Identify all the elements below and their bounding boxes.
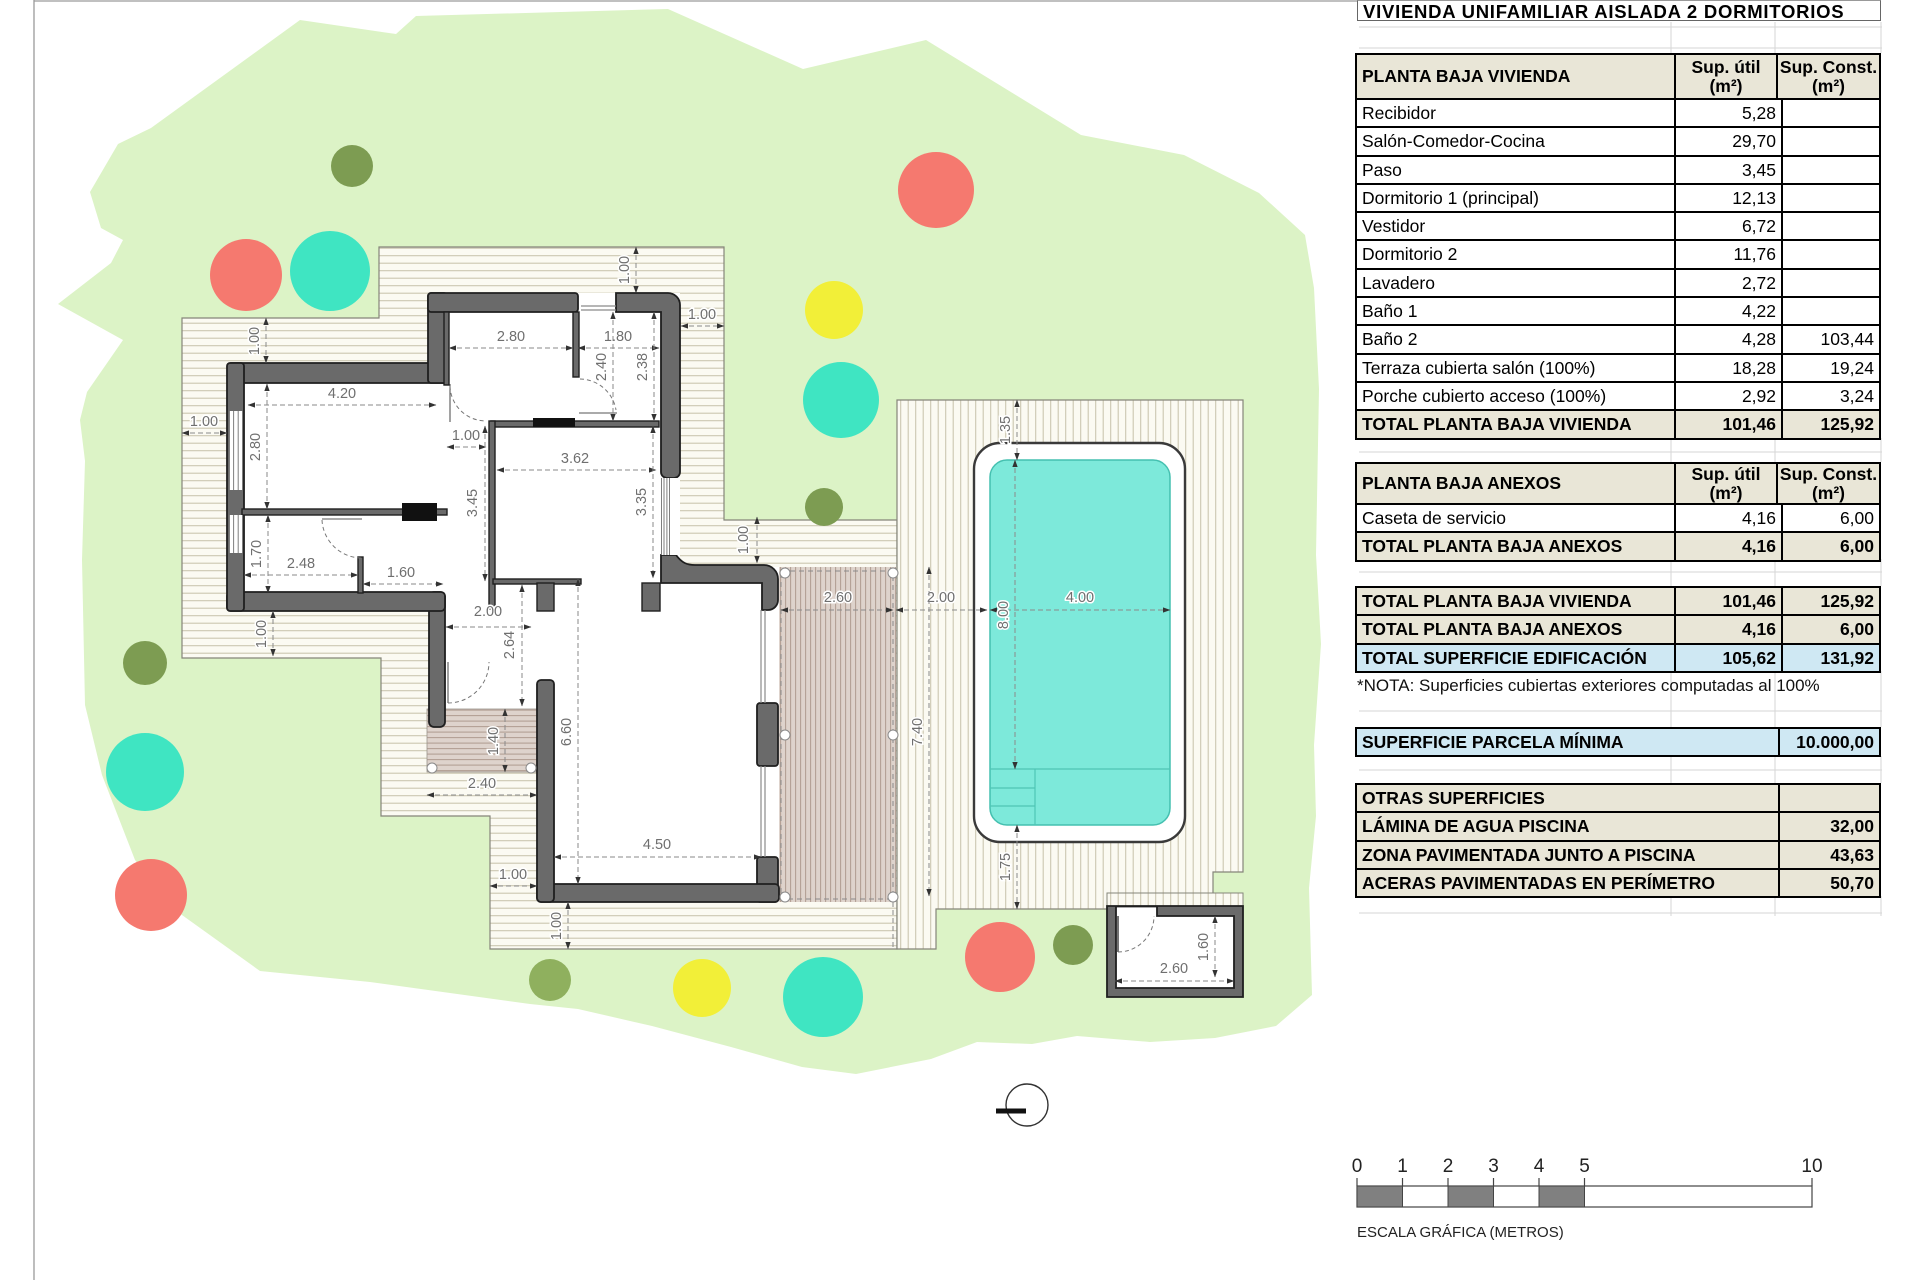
svg-text:6.60: 6.60 <box>559 718 575 746</box>
svg-text:4.00: 4.00 <box>1066 590 1094 606</box>
svg-text:1.00: 1.00 <box>617 256 633 284</box>
svg-text:2.00: 2.00 <box>474 604 502 620</box>
svg-text:ESCALA GRÁFICA (METROS): ESCALA GRÁFICA (METROS) <box>1357 1224 1564 1241</box>
svg-text:2.60: 2.60 <box>1160 961 1188 977</box>
svg-text:2.00: 2.00 <box>927 590 955 606</box>
svg-text:1.00: 1.00 <box>499 867 527 883</box>
svg-text:1.35: 1.35 <box>998 416 1014 444</box>
svg-text:3.35: 3.35 <box>634 488 650 516</box>
svg-text:1.60: 1.60 <box>387 565 415 581</box>
svg-text:2.60: 2.60 <box>824 590 852 606</box>
svg-text:1.60: 1.60 <box>1196 933 1212 961</box>
svg-text:1.00: 1.00 <box>254 620 270 648</box>
svg-text:1.00: 1.00 <box>452 428 480 444</box>
svg-text:4.50: 4.50 <box>643 837 671 853</box>
svg-text:2.40: 2.40 <box>594 353 610 381</box>
svg-text:1.70: 1.70 <box>249 540 265 568</box>
svg-text:2.38: 2.38 <box>635 353 651 381</box>
svg-text:0: 0 <box>1352 1156 1363 1177</box>
svg-text:1.75: 1.75 <box>998 853 1014 881</box>
svg-text:1.00: 1.00 <box>549 912 565 940</box>
svg-text:2.48: 2.48 <box>287 556 315 572</box>
svg-text:3.62: 3.62 <box>561 451 589 467</box>
svg-text:1: 1 <box>1397 1156 1408 1177</box>
svg-text:1.00: 1.00 <box>688 307 716 323</box>
svg-text:1.00: 1.00 <box>736 526 752 554</box>
svg-text:2.80: 2.80 <box>248 433 264 461</box>
svg-text:8.00: 8.00 <box>996 601 1012 629</box>
svg-text:7.40: 7.40 <box>910 718 926 746</box>
svg-text:5: 5 <box>1579 1156 1590 1177</box>
svg-text:10: 10 <box>1801 1156 1822 1177</box>
svg-text:4: 4 <box>1534 1156 1545 1177</box>
svg-text:2: 2 <box>1443 1156 1454 1177</box>
svg-text:2.64: 2.64 <box>502 631 518 659</box>
svg-text:3.45: 3.45 <box>465 489 481 517</box>
svg-text:2.80: 2.80 <box>497 329 525 345</box>
svg-text:1.00: 1.00 <box>190 414 218 430</box>
svg-text:4.20: 4.20 <box>328 386 356 402</box>
svg-text:1.80: 1.80 <box>604 329 632 345</box>
svg-text:1.40: 1.40 <box>486 727 502 755</box>
svg-text:3: 3 <box>1488 1156 1499 1177</box>
svg-text:1.00: 1.00 <box>247 327 263 355</box>
svg-text:2.40: 2.40 <box>468 776 496 792</box>
